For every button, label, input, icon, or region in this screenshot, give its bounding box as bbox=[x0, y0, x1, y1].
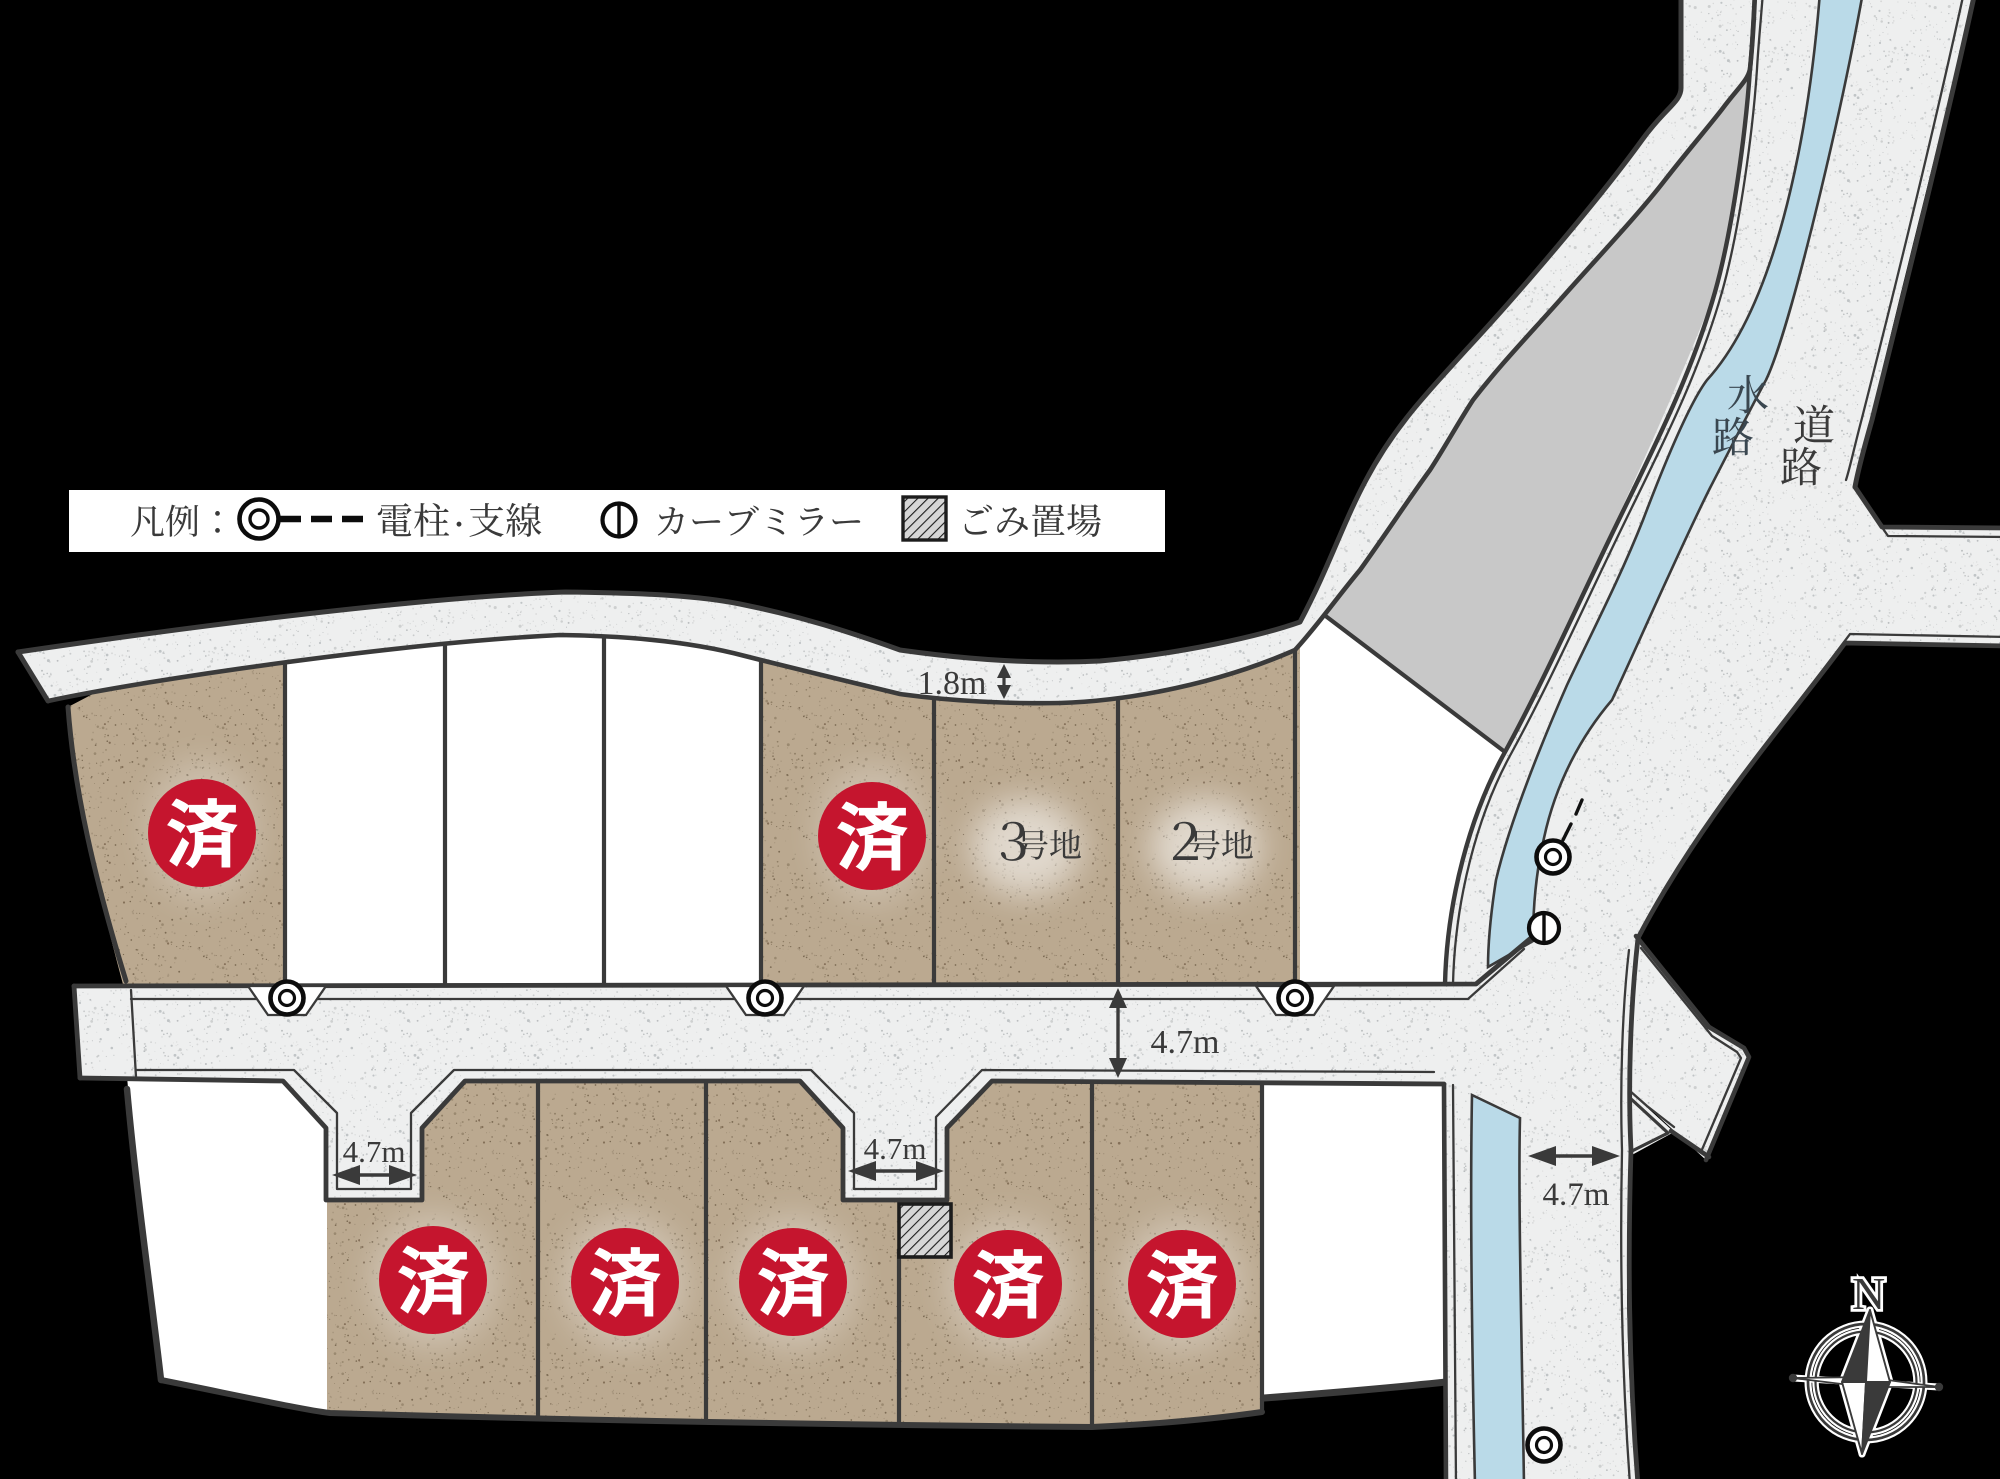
svg-text:4.7m: 4.7m bbox=[1151, 1024, 1220, 1061]
svg-text:N: N bbox=[1852, 1268, 1885, 1319]
svg-text:4.7m: 4.7m bbox=[343, 1134, 406, 1169]
svg-text:4.7m: 4.7m bbox=[864, 1131, 927, 1166]
svg-text:4.7m: 4.7m bbox=[1543, 1177, 1610, 1213]
svg-text:1.8m: 1.8m bbox=[918, 665, 987, 702]
